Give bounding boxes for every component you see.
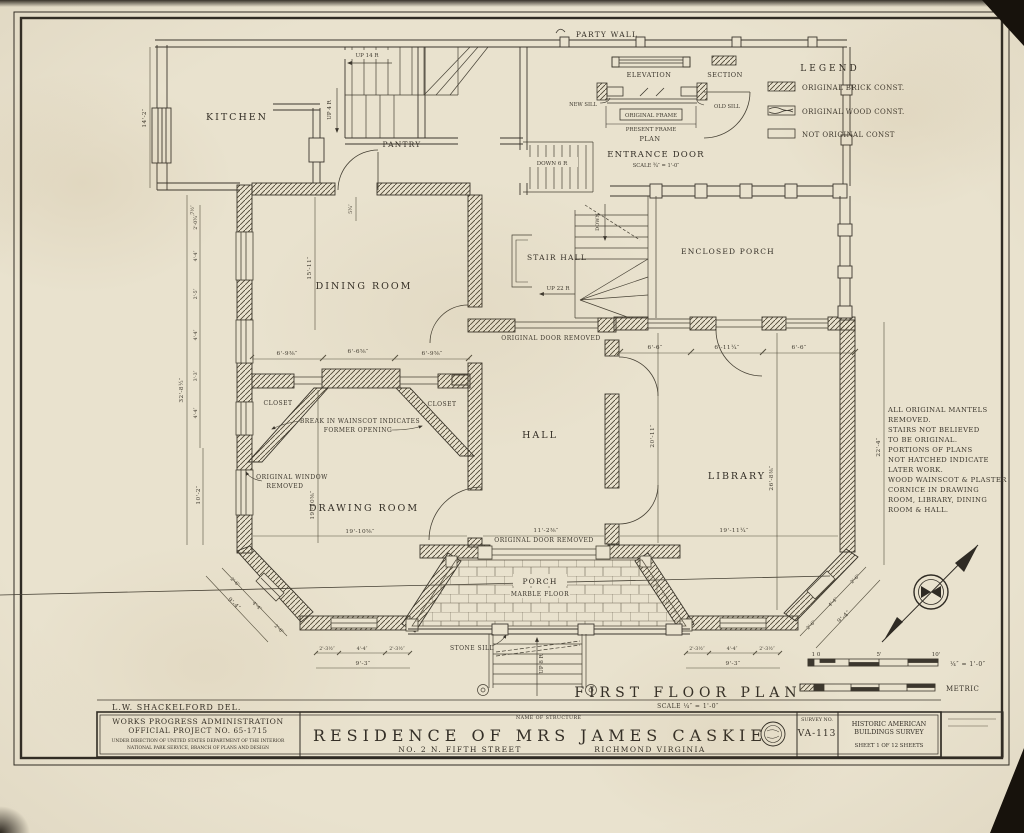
wpa-line-4: NATIONAL PARK SERVICE, BRANCH OF PLANS A…	[127, 746, 269, 751]
wpa-line-1: WORKS PROGRESS ADMINISTRATION	[112, 717, 283, 726]
ann-door-removed-porch: ORIGINAL DOOR REMOVED	[494, 537, 593, 544]
detail-elevation: ELEVATION	[627, 71, 672, 79]
plan-title: FIRST FLOOR PLAN	[574, 685, 801, 701]
ann-stone-sill: STONE SILL	[450, 645, 494, 652]
detail-section: SECTION	[707, 71, 743, 79]
room-kitchen: KITCHEN	[206, 112, 268, 123]
note-line: WOOD WAINSCOT & PLASTER	[888, 476, 1007, 484]
legend-wood-label: ORIGINAL WOOD CONST.	[802, 108, 905, 116]
stair-up8-label: UP 8 R	[539, 653, 545, 673]
room-closet-right: CLOSET	[428, 401, 457, 408]
structure-title: RESIDENCE OF MRS JAMES CASKIE	[313, 726, 767, 745]
name-of-structure-label: NAME OF STRUCTURE	[516, 715, 581, 721]
dim-front-lt: 9'-3″	[355, 661, 371, 667]
dim-mid-3: 6'-9⅝″	[421, 351, 443, 357]
dim-l6: 4'-4″	[193, 407, 199, 418]
stair-up4-label: UP 4 R	[327, 99, 333, 119]
detail-plan: PLAN	[639, 135, 660, 143]
legend-title: LEGEND	[800, 64, 859, 74]
ann-window-removed-2: REMOVED	[267, 483, 304, 490]
habs-line-1: HISTORIC AMERICAN	[852, 720, 927, 728]
dim-porch-2: 6'-11¼″	[714, 344, 740, 351]
dim-l5: 3'-3″	[193, 370, 199, 381]
note-line: ALL ORIGINAL MANTELS	[887, 406, 988, 414]
room-library: LIBRARY	[708, 471, 766, 482]
ann-wainscot-2: FORMER OPENING	[324, 427, 393, 434]
dim-l3: 2'-5″	[193, 288, 199, 299]
ann-door-removed-stair: ORIGINAL DOOR REMOVED	[501, 335, 600, 342]
habs-drawing-sheet: PARTY WALL UP 14 R UP 4 R	[0, 0, 1024, 833]
dim-front-rt: 9'-3″	[725, 661, 741, 667]
room-hall: HALL	[522, 430, 558, 441]
stair-down6-label: DOWN 6 R	[537, 161, 568, 167]
dim-l2: 4'-4″	[193, 250, 199, 261]
legend-brick-label: ORIGINAL BRICK CONST.	[802, 84, 904, 92]
legend-swatch-none	[768, 129, 795, 138]
graphic-scale-feet	[808, 659, 938, 666]
habs-line-2: BUILDINGS SURVEY	[854, 728, 924, 736]
note-line: ROOM & HALL.	[888, 506, 948, 514]
detail-old-sill: OLD SILL	[714, 104, 741, 110]
dim-lib-h: 26'-8⅜″	[769, 465, 775, 491]
dim-bayr-2: 4'-4″	[827, 596, 839, 608]
wpa-line-2: OFFICIAL PROJECT NO. 65-1715	[128, 726, 267, 735]
dim-draw-w: 19'-10⅝″	[345, 529, 375, 535]
title-block: L.W. SHACKELFORD DEL. WORKS PROGRESS ADM…	[97, 700, 1003, 757]
note-line: REMOVED.	[888, 416, 931, 424]
legend: LEGEND ORIGINAL BRICK CONST. ORIGINAL WO…	[768, 64, 905, 139]
dim-right-h: 22'-4″	[876, 437, 882, 457]
scale-tick-10: 10'	[932, 652, 941, 658]
scale-metric-label: METRIC	[946, 685, 979, 693]
survey-no-label: SURVEY NO.	[801, 717, 833, 723]
dim-porch-1: 6'-6″	[647, 345, 663, 351]
dim-kitchen-h: 14'-2″	[142, 108, 148, 128]
dim-front-l2: 4'-4″	[357, 646, 368, 652]
notes-block: ALL ORIGINAL MANTELS REMOVED. STAIRS NOT…	[887, 406, 1007, 514]
detail-scale: SCALE ¾″ = 1'-0″	[633, 162, 680, 169]
dim-porch-3: 6'-6″	[791, 345, 807, 351]
note-line: STAIRS NOT BELIEVED	[888, 426, 980, 434]
room-stair-hall: STAIR HALL	[527, 253, 587, 262]
note-line: PORTIONS OF PLANS	[888, 446, 973, 454]
sheet-count: SHEET 1 OF 12 SHEETS	[855, 743, 924, 749]
floor-plan-drawing: PARTY WALL UP 14 R UP 4 R	[0, 0, 1024, 833]
detail-new-sill: NEW SILL	[569, 102, 597, 108]
ann-window-removed-1: ORIGINAL WINDOW	[256, 474, 328, 481]
dim-l1: 2'-0¾″	[192, 214, 199, 230]
dim-bayl-2: 4'-4″	[251, 600, 263, 612]
stair-up22-label: UP 22 R	[547, 286, 571, 292]
dim-dining-s: 5¾″	[347, 204, 354, 214]
dim-bayl-3: 2'-6″	[273, 623, 285, 635]
legend-swatch-wood	[768, 106, 795, 115]
dim-l10: 10'-2″	[196, 485, 202, 505]
note-line: TO BE ORIGINAL.	[888, 436, 957, 444]
dim-lib-w: 19'-11¼″	[719, 527, 749, 534]
dim-bayl-t: 9'-4″	[226, 597, 241, 612]
room-drawing: DRAWING ROOM	[309, 503, 419, 514]
stair-down-label: DOWN	[595, 213, 601, 231]
structure-city: RICHMOND VIRGINIA	[594, 745, 705, 754]
wpa-line-3: UNDER DIRECTION OF UNITED STATES DEPARTM…	[112, 739, 285, 744]
dim-hall-w: 11'-2⅜″	[533, 528, 559, 534]
room-pantry: PANTRY	[383, 140, 422, 149]
dim-l4: 4'-4″	[193, 329, 199, 340]
dim-front-l3: 2'-3½″	[389, 645, 405, 652]
dim-l7: 7½″	[189, 205, 196, 215]
room-enclosed-porch: ENCLOSED PORCH	[681, 247, 775, 256]
legend-none-label: NOT ORIGINAL CONST	[802, 131, 895, 139]
survey-no-value: VA-113	[797, 729, 837, 739]
note-line: ROOM, LIBRARY, DINING	[888, 496, 987, 504]
detail-original-frame: ORIGINAL FRAME	[625, 113, 677, 119]
dim-draw-h: 19'-10⅝″	[310, 490, 316, 520]
dim-bayr-3: 2'-6″	[849, 573, 861, 585]
room-dining: DINING ROOM	[316, 281, 413, 292]
dim-mid-1: 6'-9⅜″	[276, 351, 298, 357]
graphic-scale-metric	[800, 684, 935, 691]
dim-bayr-1: 2'-6″	[805, 619, 817, 631]
dim-mid-2: 6'-6⅝″	[347, 349, 369, 355]
legend-swatch-brick	[768, 82, 795, 91]
dim-left-total: 32'-8½″	[178, 377, 185, 403]
room-porch: PORCH	[522, 577, 557, 586]
dim-bayl-1: 2'-6″	[229, 576, 241, 588]
plan-scale: SCALE ¼″ = 1'-0″	[657, 703, 719, 710]
scale-tick-0: 1 0	[812, 652, 821, 658]
note-line: NOT HATCHED INDICATE	[888, 456, 989, 464]
stamp-marks	[767, 730, 779, 739]
scale-feet-label: ¼″ = 1'-0″	[950, 661, 986, 668]
porch-marble-label: MARBLE FLOOR	[511, 591, 569, 598]
dim-hall-h: 20'-11″	[650, 424, 656, 448]
dim-front-r1: 2'-3½″	[689, 645, 705, 652]
detail-present-frame: PRESENT FRAME	[626, 127, 676, 133]
kitchen-stairs	[337, 47, 488, 138]
stair-up14-label: UP 14 R	[356, 53, 380, 59]
room-closet-left: CLOSET	[264, 400, 293, 407]
dim-front-r3: 2'-3½″	[759, 645, 775, 652]
corner-box-marks	[948, 719, 996, 726]
note-line: CORNICE IN DRAWING	[888, 486, 979, 494]
structure-address: NO. 2 N. FIFTH STREET	[398, 745, 521, 754]
wall-openings	[0, 232, 835, 631]
dim-front-r2: 4'-4″	[727, 646, 738, 652]
note-line: LATER WORK.	[888, 466, 943, 474]
north-arrow	[882, 545, 978, 642]
scale-tick-5: 5'	[876, 652, 881, 658]
delineator: L.W. SHACKELFORD DEL.	[112, 703, 241, 712]
entrance-door-detail: ELEVATION SECTION NEW SILL OLD SILL ORIG…	[569, 56, 743, 169]
party-wall	[155, 29, 847, 47]
dim-front-l1: 2'-3½″	[319, 645, 335, 652]
dim-dining: 15'-11″	[307, 256, 313, 280]
detail-title: ENTRANCE DOOR	[607, 150, 704, 160]
party-wall-label: PARTY WALL	[576, 30, 638, 39]
